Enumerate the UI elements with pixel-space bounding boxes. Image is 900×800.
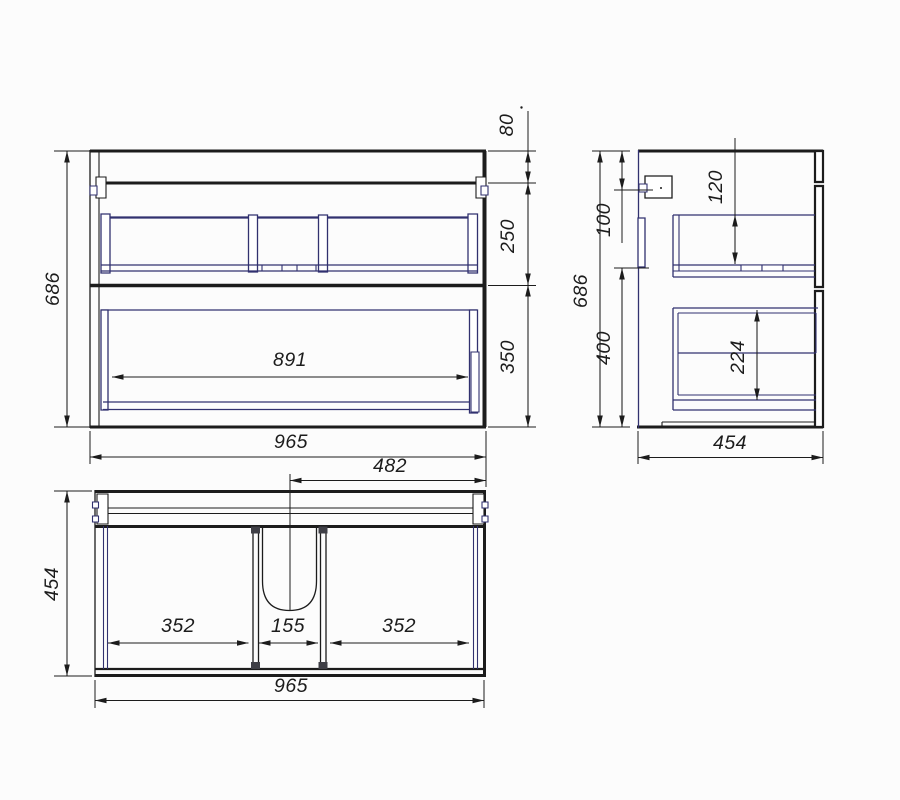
side-view: 686 100 400 120 224 454 [570, 138, 823, 464]
dim-front-upper: 250 [497, 219, 519, 254]
side-facade-lower-front [815, 291, 823, 427]
side-dimensions: 686 100 400 120 224 454 [570, 138, 823, 464]
side-back-rail [638, 218, 645, 267]
side-upper-drawer-box [673, 215, 815, 277]
plan-left-divider [251, 526, 260, 669]
plan-view: 454 352 155 352 965 [41, 474, 488, 708]
dim-plan-left-bay: 352 [161, 615, 195, 637]
front-outline [90, 150, 486, 428]
dim-plan-middle-bay: 155 [271, 615, 305, 637]
dim-side-hanger: 100 [593, 203, 615, 237]
front-upper-drawer-frame [101, 214, 478, 273]
stray-dot [520, 106, 522, 108]
front-left-hinge-bracket [90, 177, 106, 198]
dim-plan-depth: 454 [41, 567, 63, 601]
dim-side-height: 686 [570, 274, 592, 308]
dim-front-top-rail: 80 [496, 114, 518, 137]
dim-side-upper-inner: 120 [705, 170, 727, 204]
dim-front-inner-width: 891 [273, 349, 307, 371]
dim-side-lower-zone: 400 [593, 331, 615, 365]
drawing-canvas: 686 80 250 350 891 965 4 [0, 0, 900, 800]
front-right-hinge-bracket [476, 177, 488, 198]
plan-right-divider [319, 526, 328, 669]
front-dimensions: 686 80 250 350 891 965 4 [42, 106, 536, 487]
dim-plan-center-right: 482 [373, 455, 407, 477]
dim-side-depth: 454 [713, 432, 747, 454]
dim-plan-width: 965 [274, 675, 308, 697]
side-facade-top-rail [815, 151, 823, 182]
side-wall-hanger-bracket [639, 176, 672, 198]
dim-front-lower: 350 [497, 340, 519, 374]
cad-drawing: 686 80 250 350 891 965 4 [0, 0, 900, 800]
side-facade-upper-front [815, 186, 823, 287]
front-view: 686 80 250 350 891 965 4 [42, 106, 536, 487]
dim-front-width: 965 [274, 431, 308, 453]
dim-plan-right-bay: 352 [382, 615, 416, 637]
dim-front-height: 686 [42, 272, 64, 306]
dim-side-lower-inner: 224 [727, 340, 749, 375]
